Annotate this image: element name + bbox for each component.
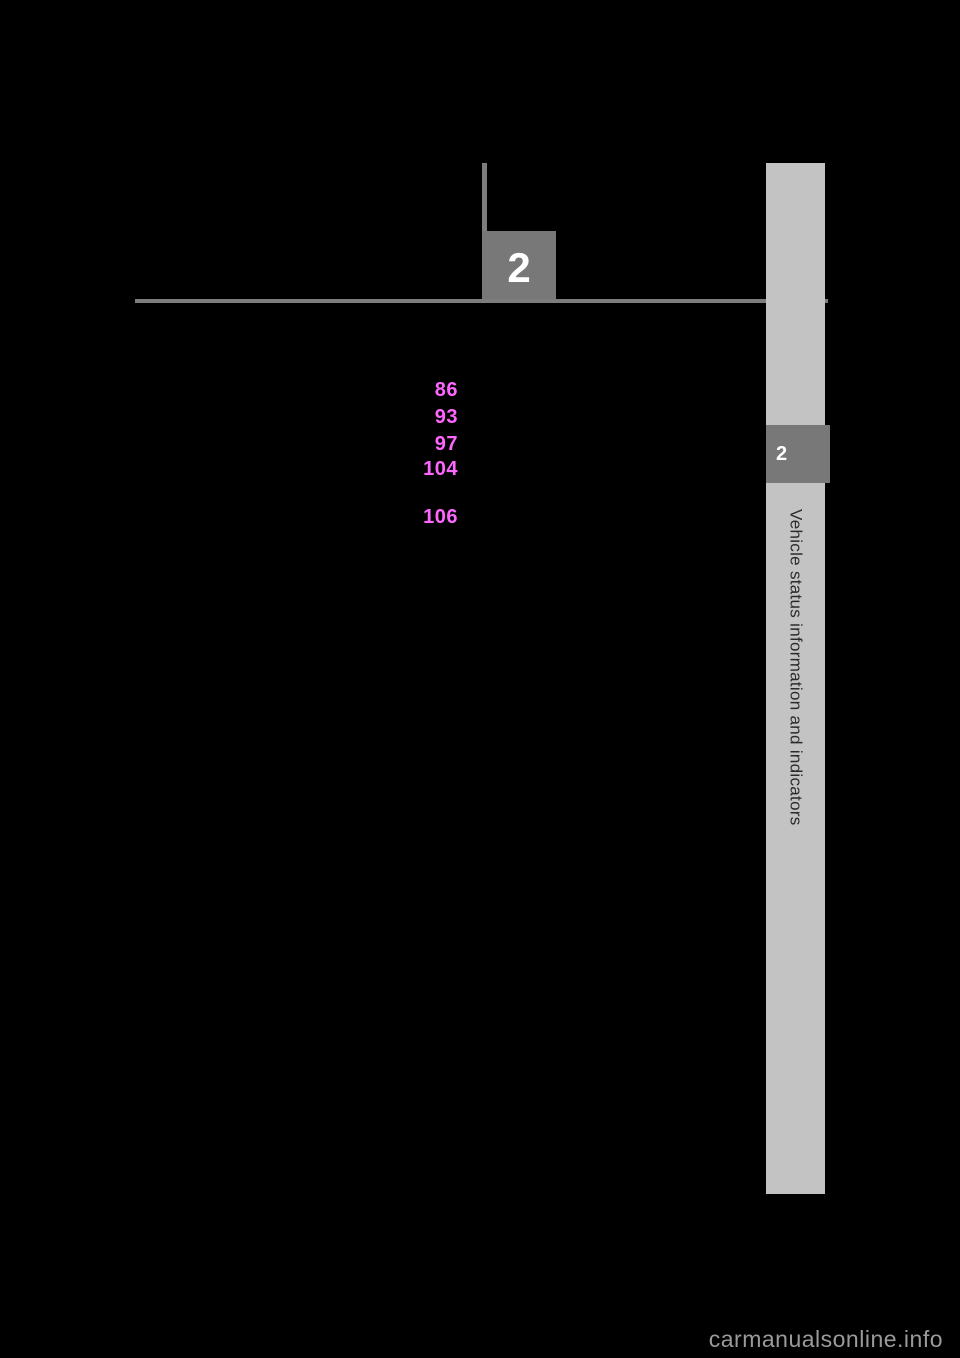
chapter-sidebar-tab: 2	[766, 425, 830, 483]
manual-page: 2 86 93 97 104 106 2 Vehicle status info…	[0, 0, 960, 1358]
header-divider-line	[135, 299, 828, 303]
chapter-number-box: 2	[482, 231, 556, 302]
toc-page-number[interactable]: 106	[423, 508, 458, 526]
chapter-sidebar-title-wrap: Vehicle status information and indicator…	[766, 497, 825, 837]
chapter-number: 2	[507, 245, 530, 289]
toc-page-number[interactable]: 104	[423, 460, 458, 478]
sidebar-chapter-number: 2	[766, 444, 787, 464]
toc-page-number[interactable]: 93	[435, 408, 458, 426]
watermark-link[interactable]: carmanualsonline.info	[709, 1326, 943, 1353]
chapter-sidebar-title: Vehicle status information and indicator…	[786, 509, 806, 826]
chapter-marker-line	[482, 163, 487, 231]
toc-page-number[interactable]: 86	[435, 381, 458, 399]
toc-page-number[interactable]: 97	[435, 435, 458, 453]
